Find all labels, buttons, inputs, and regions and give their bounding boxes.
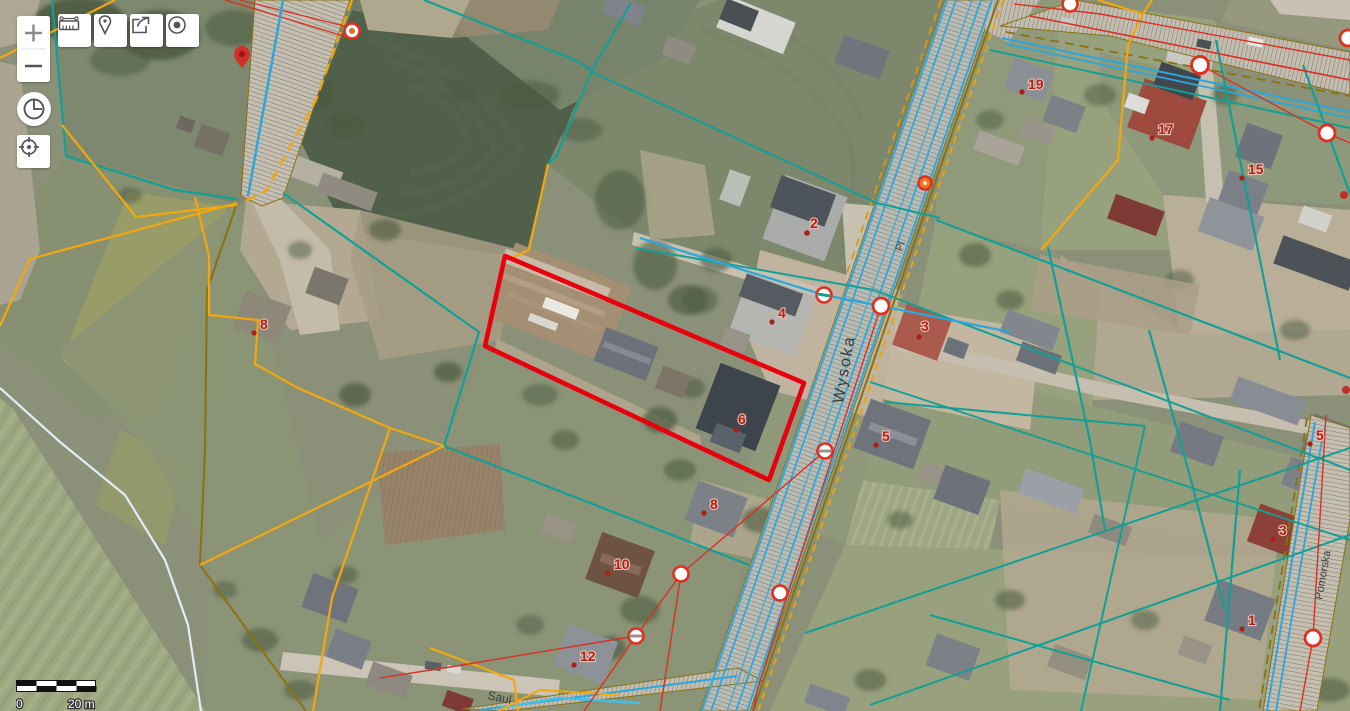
svg-text:1: 1 xyxy=(1248,612,1256,628)
svg-text:4: 4 xyxy=(778,305,786,321)
svg-text:8: 8 xyxy=(260,316,268,332)
svg-text:3: 3 xyxy=(921,318,929,334)
svg-text:6: 6 xyxy=(738,411,746,427)
svg-text:15: 15 xyxy=(1248,161,1264,177)
svg-text:10: 10 xyxy=(614,556,630,572)
svg-text:5: 5 xyxy=(1316,427,1324,443)
svg-text:3: 3 xyxy=(1279,522,1287,538)
svg-text:12: 12 xyxy=(580,648,596,664)
svg-text:20 m: 20 m xyxy=(68,697,95,711)
svg-text:5: 5 xyxy=(882,428,890,444)
svg-text:19: 19 xyxy=(1028,76,1044,92)
svg-text:8: 8 xyxy=(710,496,718,512)
svg-text:2: 2 xyxy=(810,215,818,231)
svg-text:17: 17 xyxy=(1158,121,1174,137)
svg-text:0: 0 xyxy=(16,697,23,711)
